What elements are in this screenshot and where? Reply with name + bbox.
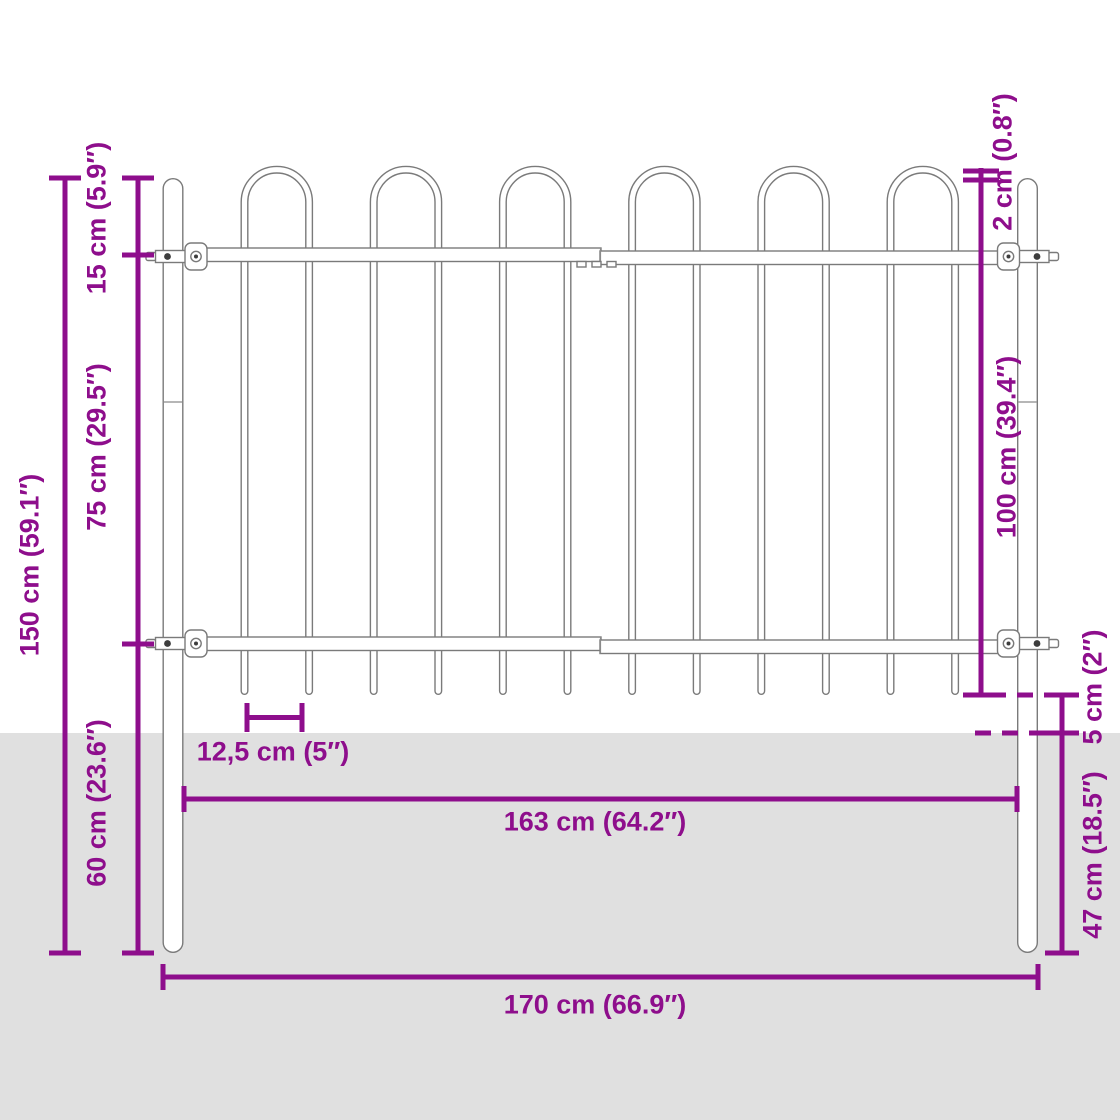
seam-tab <box>592 262 601 268</box>
seam-tab <box>607 262 616 268</box>
right-post <box>1019 189 1037 943</box>
dimension-label-hoop-above-post: 2 cm (0.8″) <box>990 93 1017 231</box>
dimension-label-total-height: 150 cm (59.1″) <box>17 474 44 657</box>
dimension-label-inner-width: 163 cm (64.2″) <box>504 809 687 836</box>
fence-dimension-diagram: 150 cm (59.1″) 15 cm (5.9″) 75 cm (29.5″… <box>0 0 1120 1120</box>
dimension-label-post-top-to-rail: 15 cm (5.9″) <box>84 142 111 295</box>
dimension-label-post-depth: 47 cm (18.5″) <box>1080 771 1107 939</box>
top-rail <box>206 248 1000 267</box>
dimension-label-panel-height: 100 cm (39.4″) <box>994 356 1021 539</box>
diagram-drawing <box>0 0 1120 1120</box>
dimension-label-ground-section: 60 cm (23.6″) <box>84 719 111 887</box>
dimension-label-total-width: 170 cm (66.9″) <box>504 992 687 1019</box>
bottom-rail <box>206 637 1000 654</box>
seam-tab <box>577 262 586 268</box>
junction-hardware <box>146 243 1059 657</box>
left-post <box>164 189 182 943</box>
dimension-label-bar-tip-clearance: 5 cm (2″) <box>1080 630 1107 745</box>
dimension-label-bar-spacing: 12,5 cm (5″) <box>197 739 350 766</box>
dimension-label-rail-to-rail: 75 cm (29.5″) <box>84 363 111 531</box>
